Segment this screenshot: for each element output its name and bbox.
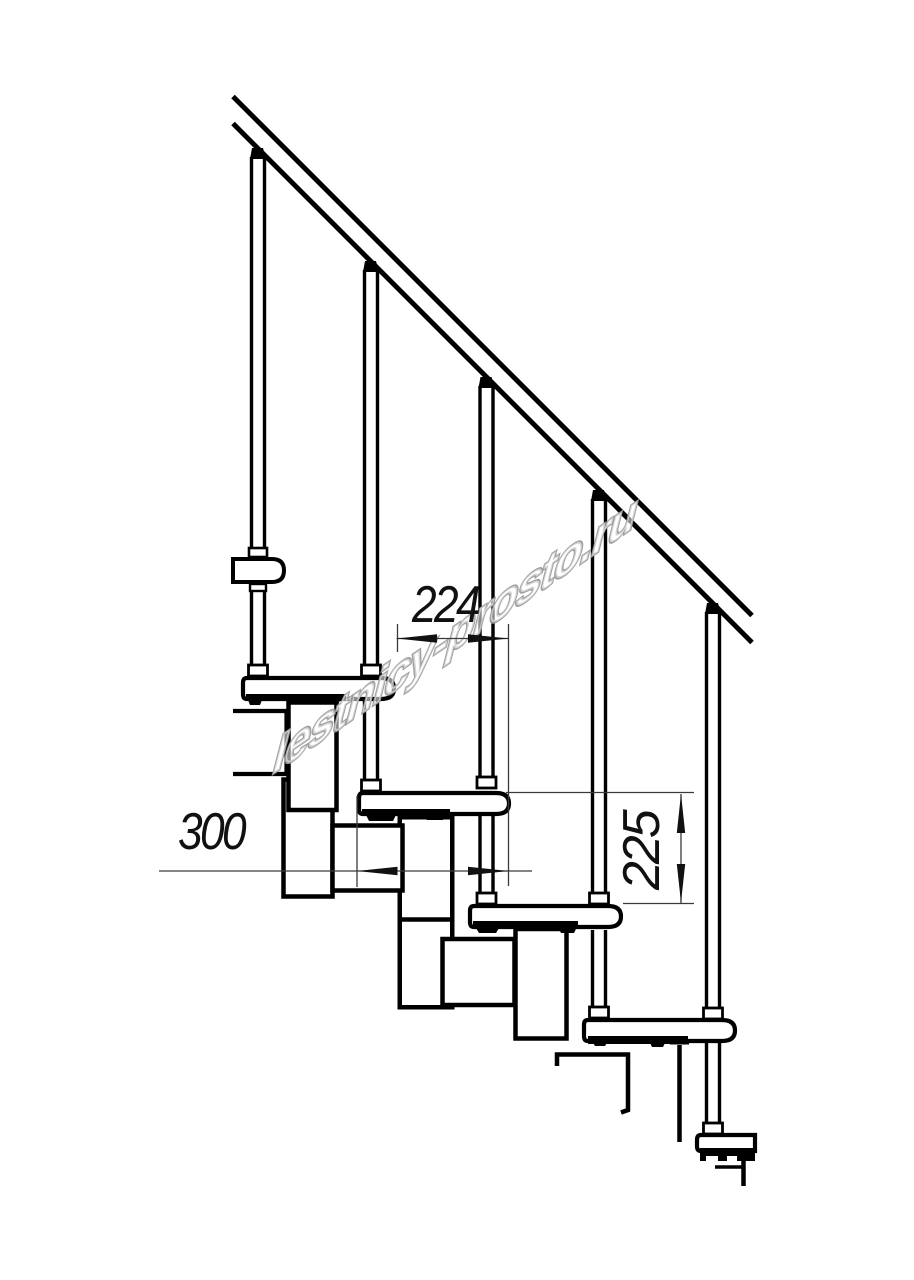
svg-text:300: 300	[178, 803, 247, 861]
svg-text:225: 225	[613, 808, 671, 891]
svg-text:224: 224	[411, 576, 480, 634]
